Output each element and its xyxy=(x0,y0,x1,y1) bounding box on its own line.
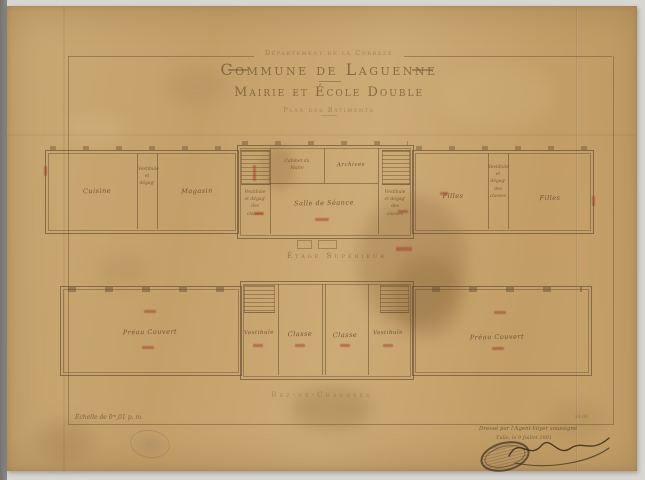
room-label-vestibule-left: Vestibule xyxy=(244,330,274,337)
title-underline xyxy=(319,81,341,82)
pier-marks xyxy=(432,287,582,292)
room-label-filles-2: Filles xyxy=(539,194,560,202)
partition-wall xyxy=(137,153,138,229)
scanned-sheet: Département de la Corrèze Commune de Lag… xyxy=(7,6,637,471)
pier-marks xyxy=(68,287,236,292)
red-dimension-mark xyxy=(492,347,504,350)
partition-wall xyxy=(378,148,379,234)
partition-wall xyxy=(157,153,158,229)
red-dimension-mark xyxy=(44,166,47,176)
staircase-lower-right xyxy=(380,285,409,313)
lower-right-preau xyxy=(412,286,592,376)
room-label-cuisine: Cuisine xyxy=(83,187,111,195)
room-label-cabinet: Cabinet du Maire xyxy=(279,158,315,172)
room-label-classe-1: Classe xyxy=(288,330,313,338)
faint-stamp xyxy=(128,427,172,460)
upper-plan-caption: Étage Supérieur xyxy=(287,252,387,260)
scale-bar-detail xyxy=(318,240,337,249)
room-label-magasin: Magasin xyxy=(181,187,213,196)
room-label-archives: Archives xyxy=(337,162,365,168)
room-label-left-corridor: Vestibule et dégagᵗ xyxy=(138,166,156,188)
room-label-preau-left: Préau Couvert xyxy=(123,328,177,337)
department-line: Département de la Corrèze xyxy=(265,49,393,57)
signature xyxy=(505,430,613,470)
staircase-upper-right xyxy=(382,150,410,185)
scale-bar-detail xyxy=(297,240,312,249)
red-dimension-mark xyxy=(142,346,154,349)
red-dimension-mark xyxy=(592,196,595,206)
room-label-classe-2: Classe xyxy=(333,331,358,339)
red-dimension-mark xyxy=(398,210,408,213)
room-label-vestibule-right: Vestibule xyxy=(373,330,403,337)
room-label-preau-right: Préau Couvert xyxy=(470,333,524,342)
page-subtitle: Mairie et École Double xyxy=(234,85,424,100)
partition-wall xyxy=(322,284,323,375)
red-dimension-mark xyxy=(295,344,305,347)
red-dimension-mark xyxy=(315,218,329,221)
lower-plan-caption: Rez-de-Chaussée xyxy=(271,391,372,399)
red-dimension-mark xyxy=(440,192,448,195)
red-dimension-mark xyxy=(254,212,264,215)
red-dimension-mark xyxy=(383,344,393,347)
partition-wall xyxy=(270,148,271,234)
corner-mark: 24,00 xyxy=(575,415,588,420)
partition-wall xyxy=(324,148,325,183)
wall-tick-marks xyxy=(242,141,408,145)
plan-note-underline xyxy=(321,115,337,116)
plan-note: Plan des Bâtiments xyxy=(283,106,374,114)
red-dimension-mark xyxy=(494,311,506,314)
frame-top-left-segment xyxy=(68,56,254,57)
page-title: Commune de Laguenne xyxy=(220,60,437,79)
partition-wall xyxy=(278,284,279,375)
red-dimension-mark xyxy=(396,247,412,251)
room-label-hall: Salle de Séance xyxy=(294,198,354,207)
red-dimension-mark xyxy=(253,344,263,347)
scanner-edge xyxy=(0,0,7,480)
wall-tick-marks xyxy=(50,146,236,150)
room-label-stair-right: Vestibule et dégagᵗ des classes xyxy=(383,189,407,218)
staircase-lower-left xyxy=(244,285,275,313)
red-dimension-mark xyxy=(144,310,156,313)
partition-wall xyxy=(270,183,378,184)
wall-tick-marks xyxy=(416,146,588,150)
partition-wall xyxy=(325,284,326,375)
scanned-archive-page: Département de la Corrèze Commune de Lag… xyxy=(0,0,645,480)
red-dimension-mark xyxy=(340,344,350,347)
partition-wall xyxy=(368,284,369,375)
scale-note: Échelle de 0ᵐ,01 p. m. xyxy=(75,414,143,421)
wall-inner-line xyxy=(415,289,589,373)
red-dimension-mark xyxy=(253,165,256,181)
frame-top-right-segment xyxy=(404,56,612,57)
room-label-right-corridor: Vestibule et dégagᵗ des classes xyxy=(488,164,508,200)
paper-crease xyxy=(63,6,65,471)
